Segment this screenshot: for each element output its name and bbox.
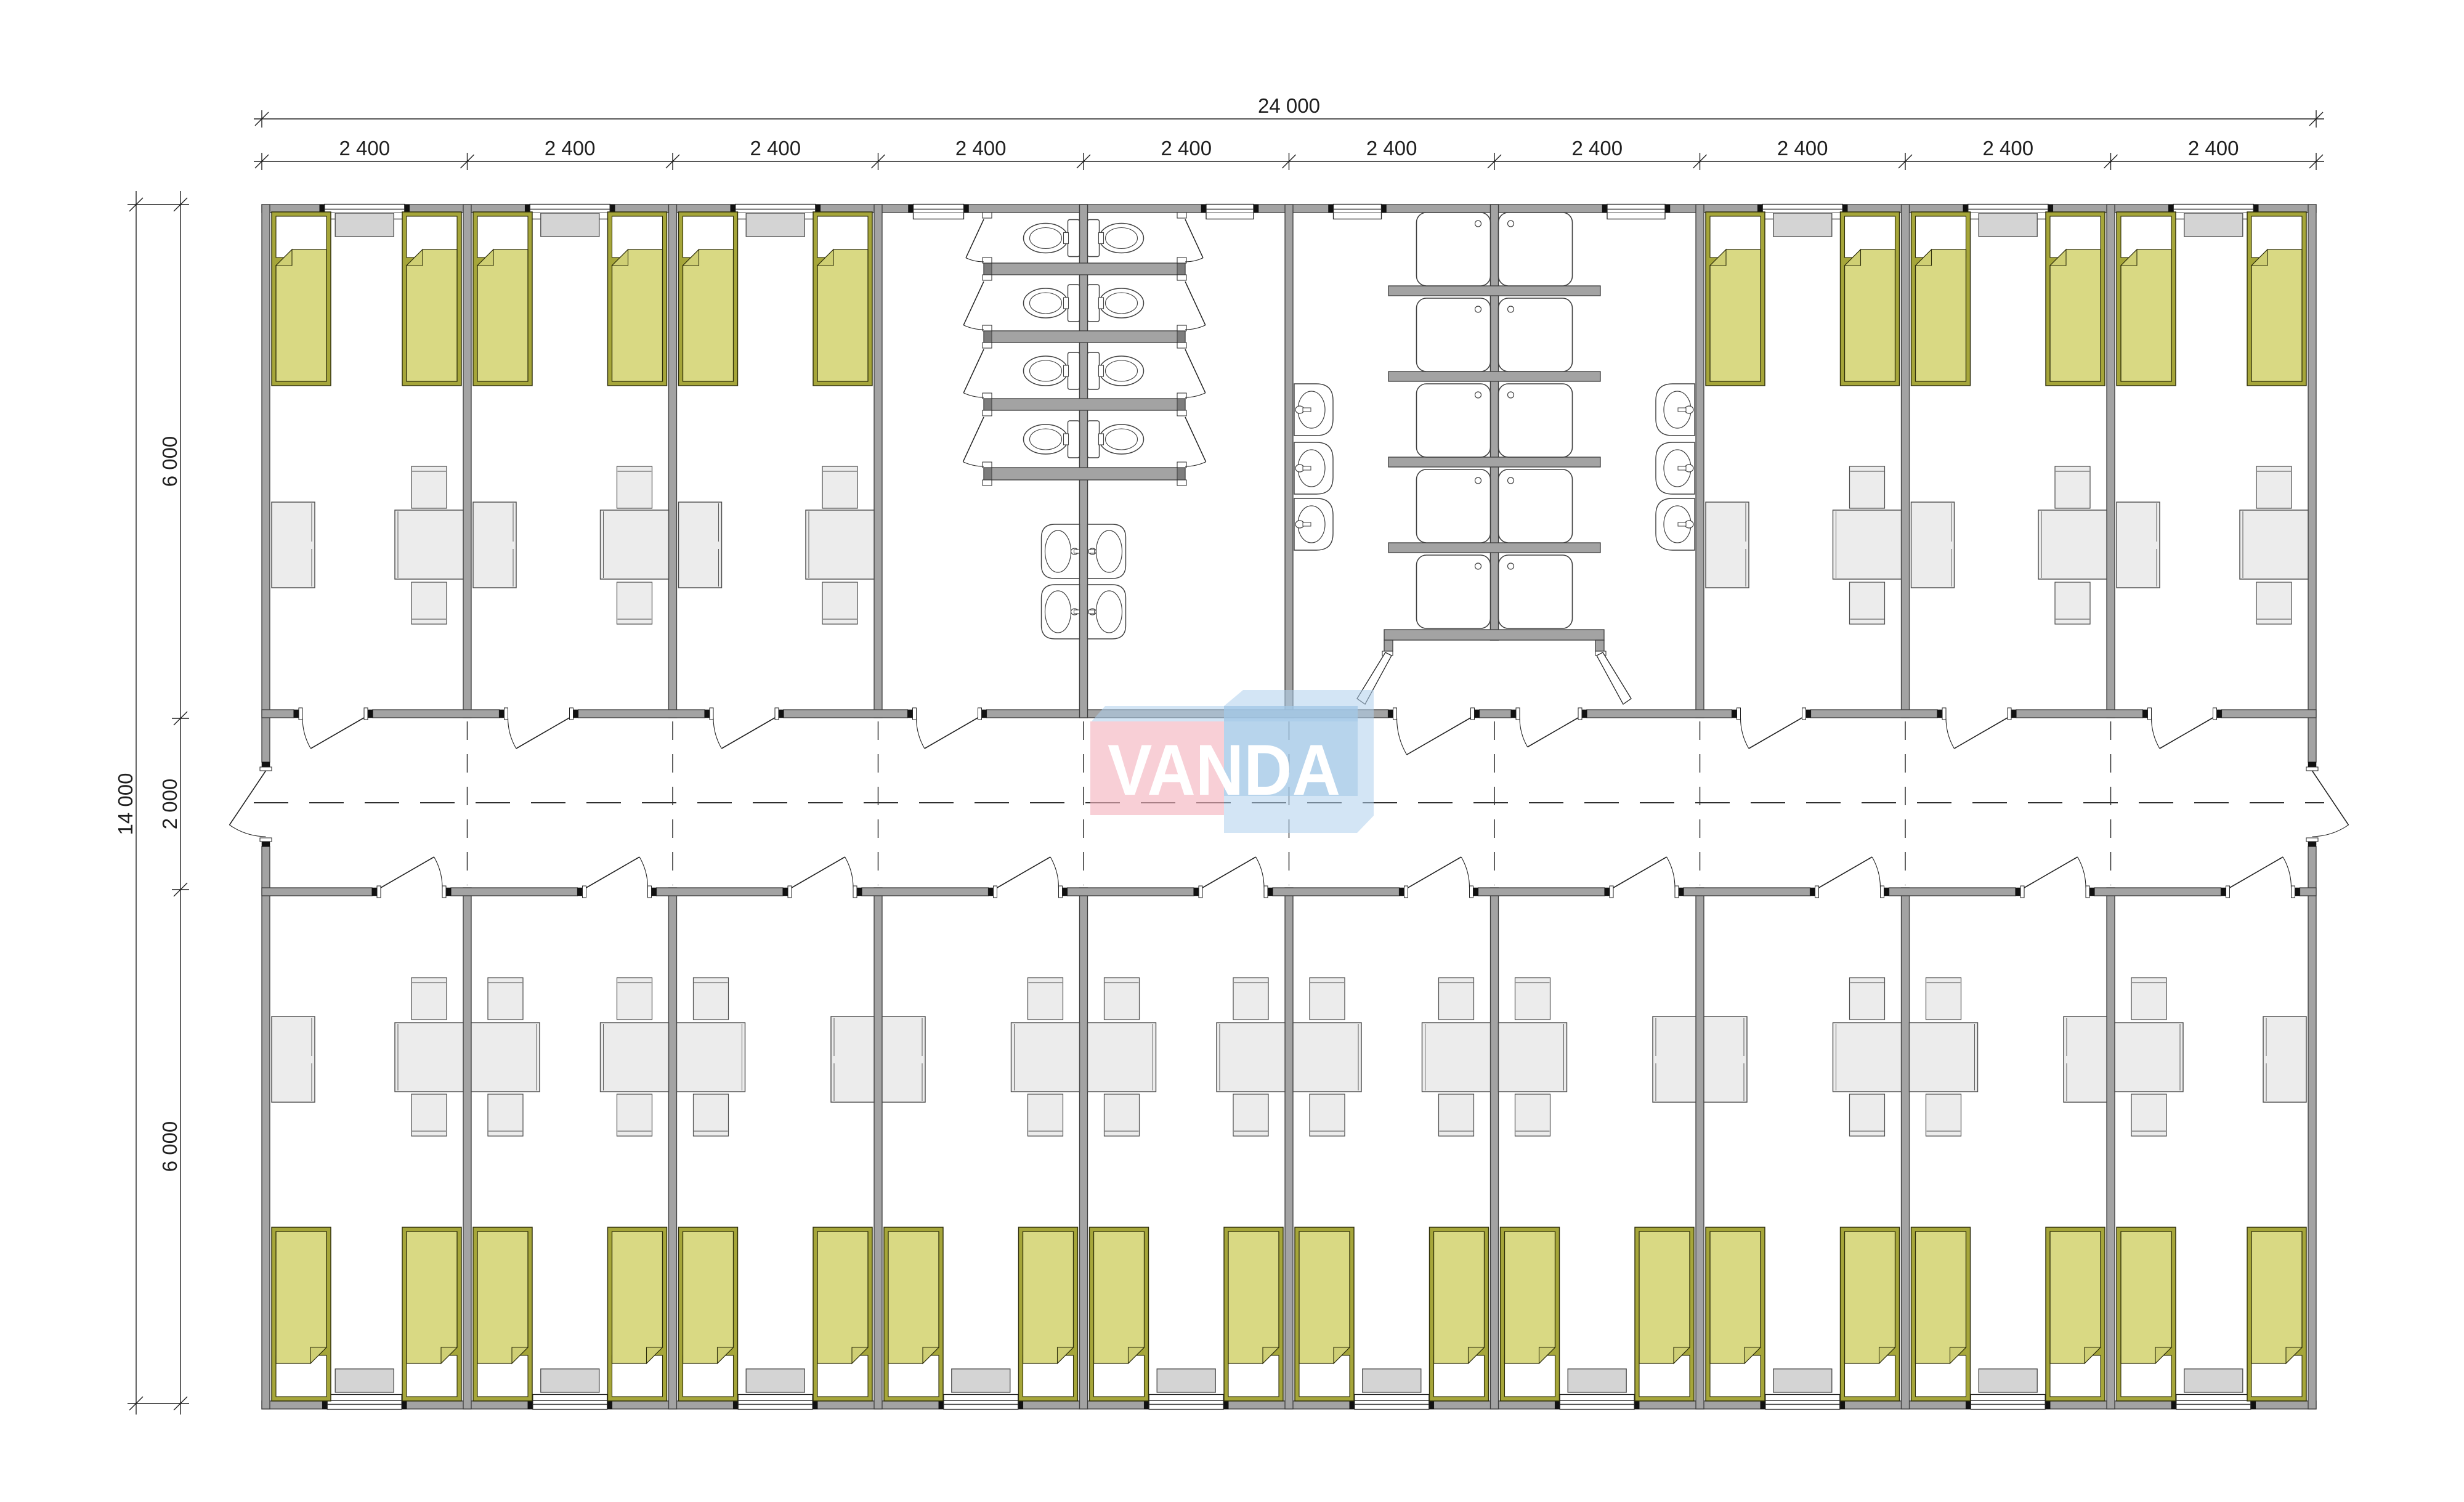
svg-text:2 400: 2 400 [1777, 137, 1828, 160]
svg-text:2 400: 2 400 [1366, 137, 1417, 160]
svg-text:2 400: 2 400 [1572, 137, 1623, 160]
svg-text:VANDA: VANDA [1108, 729, 1340, 810]
svg-text:2 400: 2 400 [750, 137, 801, 160]
svg-text:2 400: 2 400 [1983, 137, 2034, 160]
svg-text:24 000: 24 000 [1258, 94, 1320, 117]
svg-text:2 400: 2 400 [339, 137, 391, 160]
svg-text:14 000: 14 000 [114, 773, 137, 835]
svg-text:6 000: 6 000 [158, 436, 181, 487]
svg-text:2 400: 2 400 [955, 137, 1007, 160]
svg-text:6 000: 6 000 [158, 1121, 181, 1172]
svg-text:2 400: 2 400 [2188, 137, 2239, 160]
svg-text:2 400: 2 400 [545, 137, 596, 160]
svg-text:2 000: 2 000 [158, 779, 181, 830]
svg-text:2 400: 2 400 [1161, 137, 1212, 160]
